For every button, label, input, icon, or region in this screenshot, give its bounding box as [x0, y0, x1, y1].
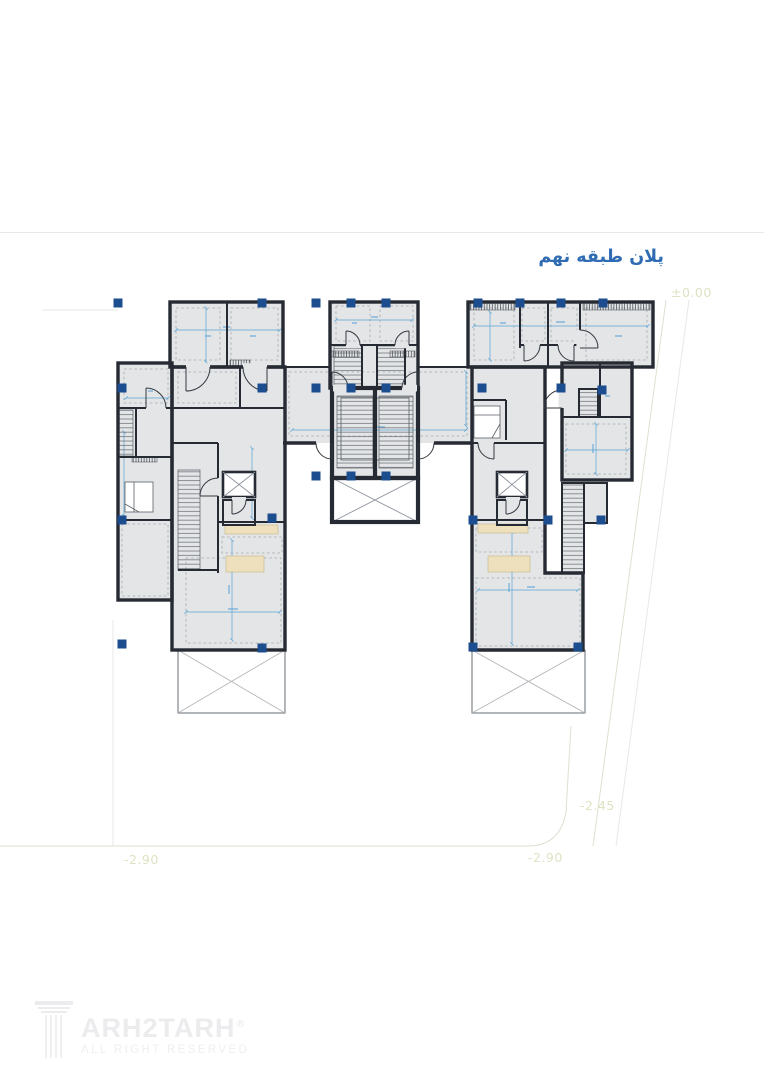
- elevation-minus290-right-label: -2.90: [528, 850, 563, 865]
- terrace-right: [472, 650, 585, 713]
- kitchen-island-right: [488, 556, 530, 572]
- stair-left-wing: [178, 470, 200, 570]
- logo-brand-text: ARH2TARH: [81, 1013, 236, 1043]
- tarh2tarh-logo: ARH2TARH® ALL RIGHT RESERVED: [33, 1000, 249, 1060]
- plan-title: پلان طبقه نهم: [538, 247, 664, 267]
- elevation-minus290-left-label: -2.90: [124, 852, 159, 867]
- stair-right-wing: [562, 483, 584, 573]
- column-icon: [33, 1000, 75, 1060]
- kitchen-counter-left: [225, 525, 278, 534]
- elevator-left: [223, 472, 255, 497]
- terrace-left: [178, 650, 285, 713]
- stair-core-right-flight: [379, 396, 413, 468]
- stair-right-small: [579, 389, 598, 417]
- floor-plan-svg: پلان طبقه نهم ±0.00 -2.45 -2.90 -2.90: [0, 0, 764, 1080]
- bed-right: [474, 406, 500, 438]
- drawing-sheet: پلان طبقه نهم ±0.00 -2.45 -2.90 -2.90 AR…: [0, 0, 764, 1080]
- kitchen-island-left: [226, 556, 264, 572]
- elevation-datum-label: ±0.00: [671, 285, 712, 300]
- logo-registered-mark: ®: [236, 1019, 246, 1030]
- stair-left-arm: [119, 410, 133, 456]
- bed-left: [125, 482, 153, 512]
- elevation-minus245-label: -2.45: [580, 798, 615, 813]
- core-void: [332, 478, 418, 522]
- logo-tagline: ALL RIGHT RESERVED: [81, 1045, 249, 1057]
- elevator-right: [497, 472, 527, 497]
- stair-core-left-flight: [337, 396, 373, 468]
